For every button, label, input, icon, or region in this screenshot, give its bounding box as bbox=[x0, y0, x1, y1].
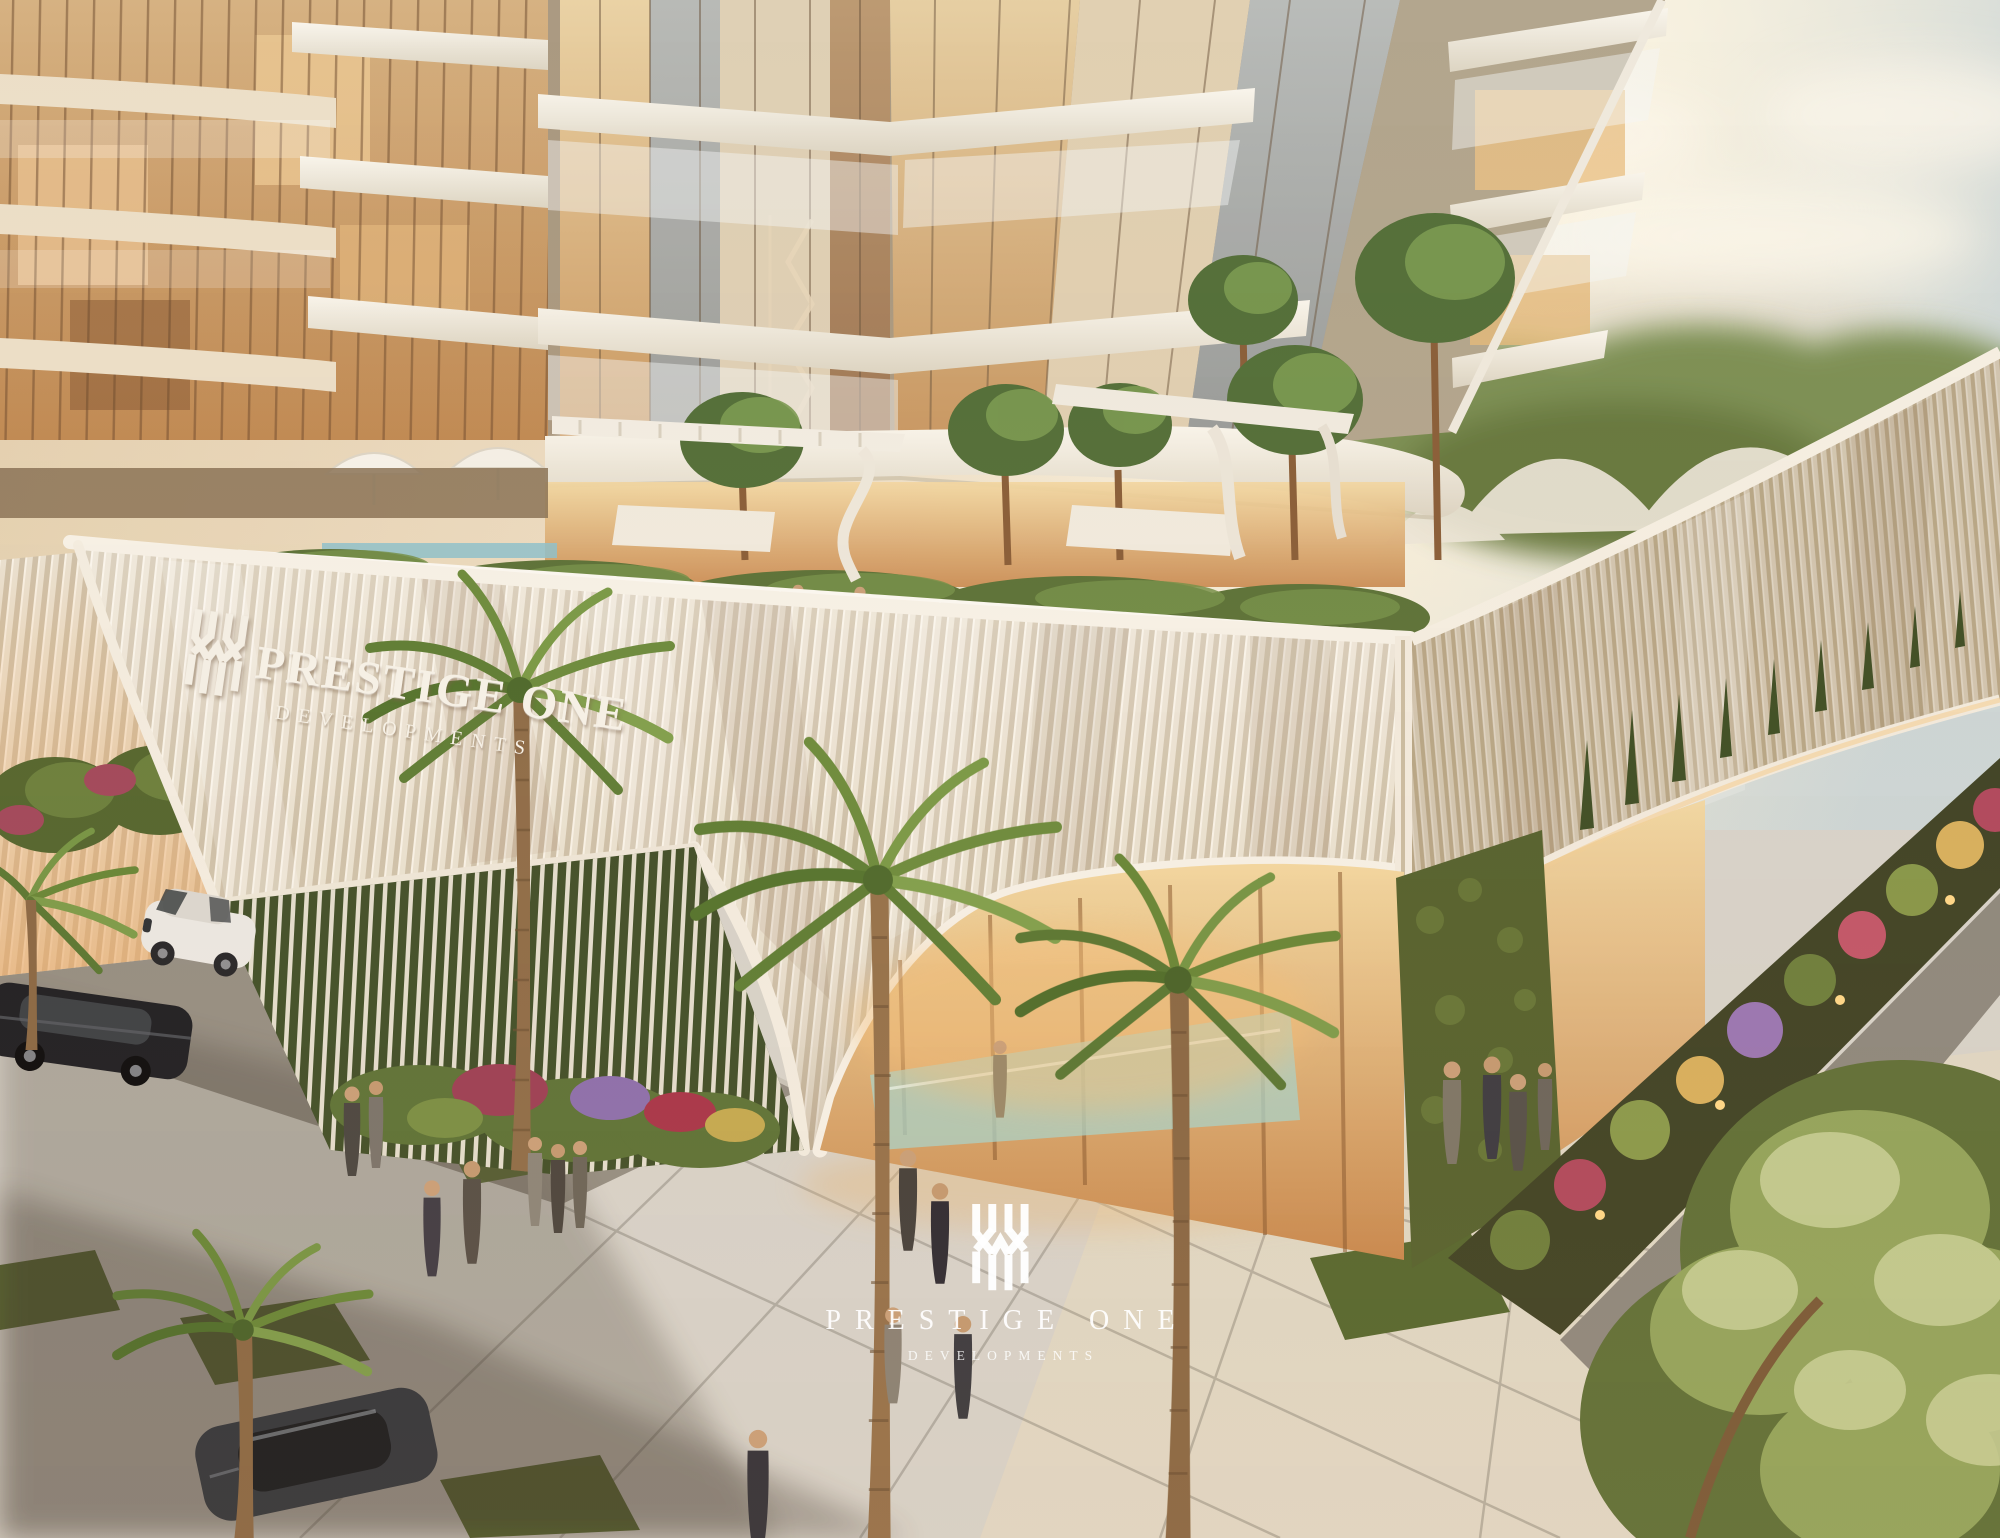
rendering-canvas: PRESTIGE ONE DEVELOPMENTS PRESTIGE ONE D… bbox=[0, 0, 2000, 1538]
vignette bbox=[0, 0, 2000, 1538]
scene-illustration bbox=[0, 0, 2000, 1538]
